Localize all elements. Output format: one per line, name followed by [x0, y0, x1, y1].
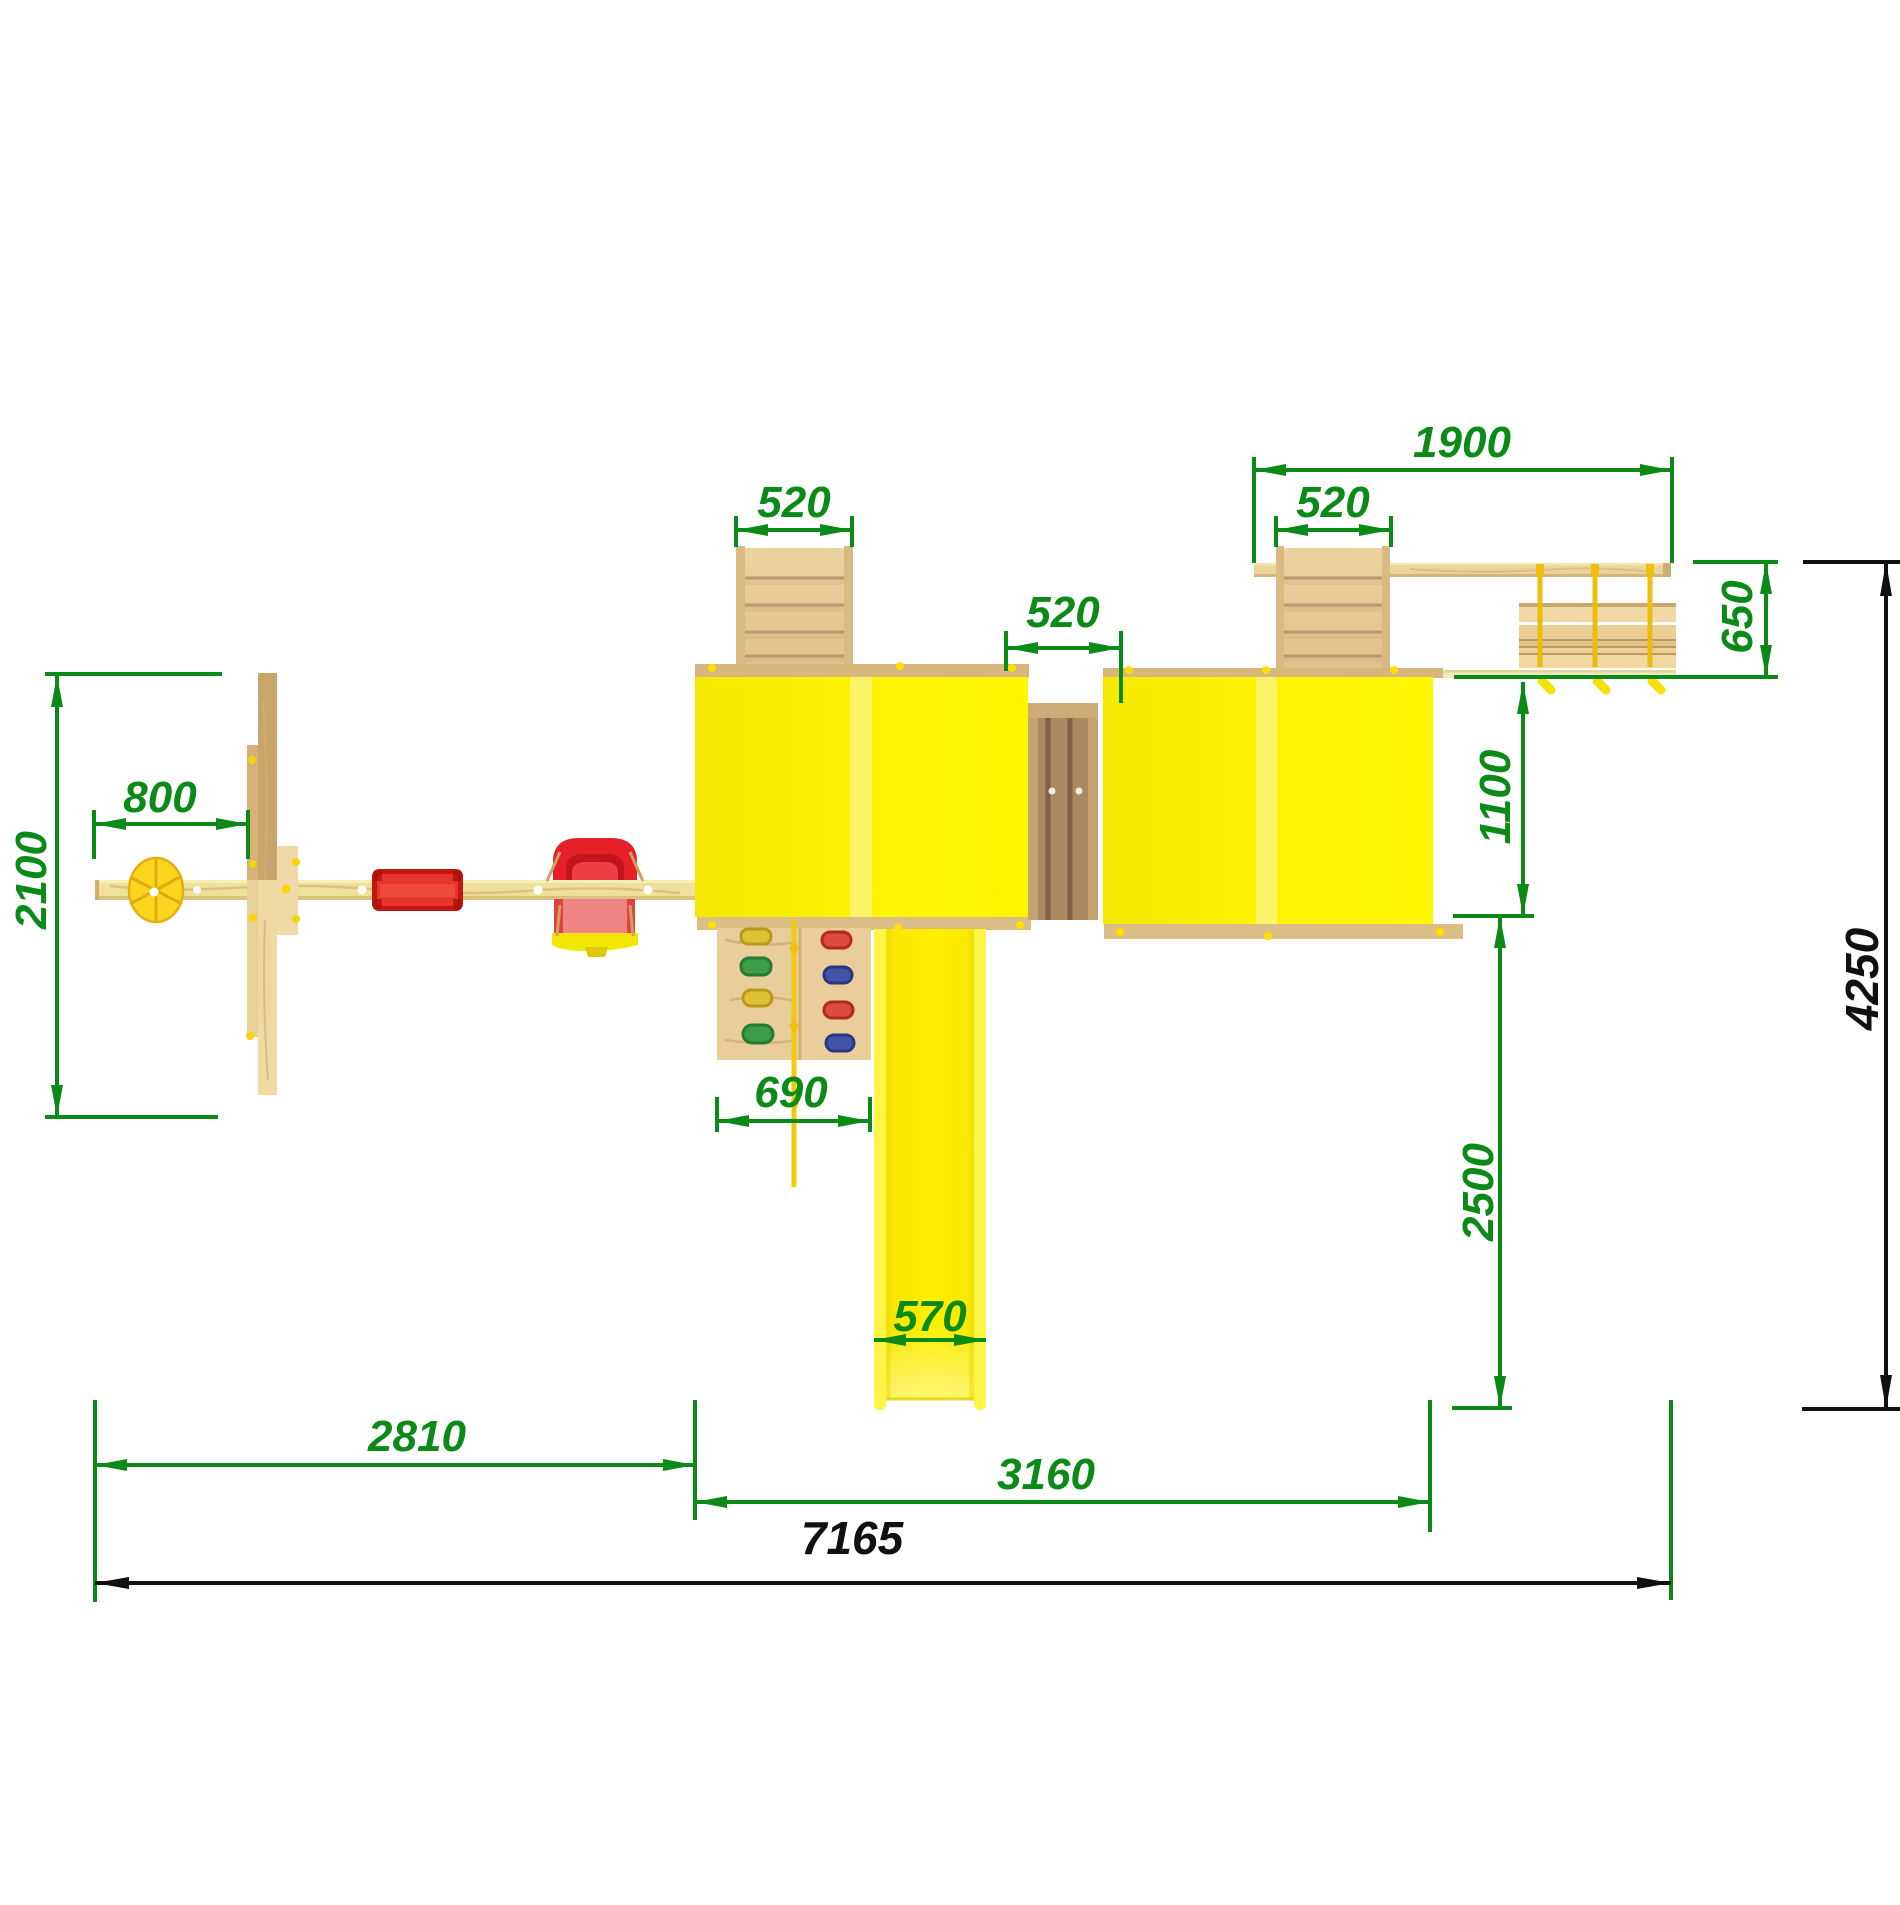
svg-text:520: 520 — [757, 478, 831, 527]
svg-text:570: 570 — [893, 1292, 967, 1341]
svg-text:520: 520 — [1296, 478, 1370, 527]
svg-text:690: 690 — [754, 1068, 828, 1117]
svg-text:520: 520 — [1026, 588, 1100, 637]
svg-text:3160: 3160 — [997, 1450, 1095, 1499]
svg-text:2500: 2500 — [1454, 1143, 1503, 1242]
svg-text:800: 800 — [123, 773, 197, 822]
svg-text:2810: 2810 — [367, 1412, 466, 1461]
svg-text:7165: 7165 — [801, 1512, 905, 1564]
svg-text:2100: 2100 — [7, 831, 56, 930]
svg-text:1900: 1900 — [1413, 418, 1511, 467]
svg-text:1100: 1100 — [1471, 749, 1520, 844]
svg-text:4250: 4250 — [1836, 927, 1888, 1031]
svg-text:650: 650 — [1713, 580, 1762, 654]
